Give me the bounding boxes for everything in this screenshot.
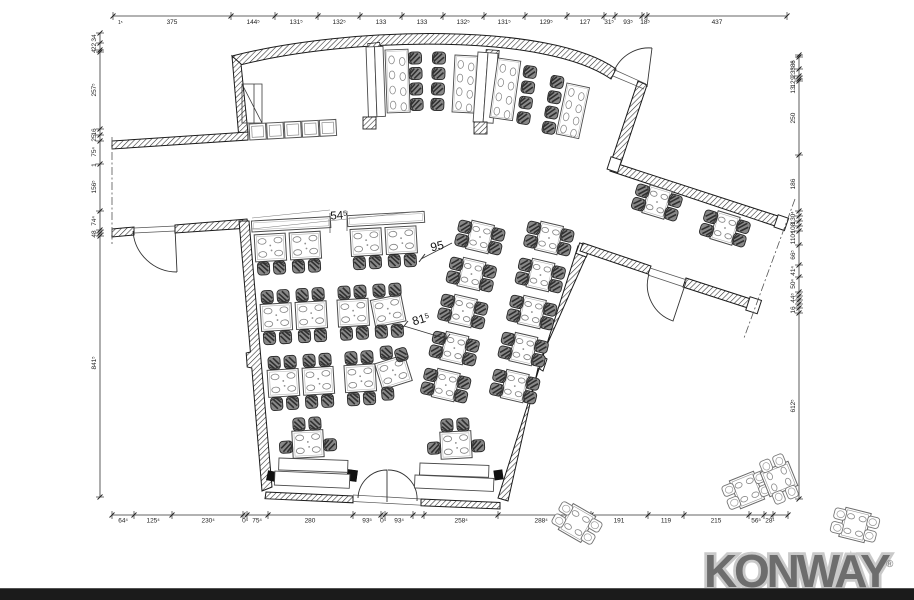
svg-text:34: 34 (91, 34, 98, 42)
svg-text:437: 437 (712, 19, 723, 26)
svg-text:48: 48 (91, 230, 98, 238)
svg-text:375: 375 (167, 19, 178, 26)
svg-text:133: 133 (376, 19, 387, 26)
svg-text:9: 9 (790, 76, 797, 80)
svg-text:®: ® (886, 559, 894, 570)
svg-text:250: 250 (790, 112, 797, 123)
svg-text:13: 13 (790, 86, 797, 94)
svg-text:1: 1 (91, 163, 98, 167)
svg-text:280: 280 (305, 518, 316, 525)
svg-text:127: 127 (580, 19, 591, 26)
svg-text:119: 119 (661, 518, 672, 525)
svg-text:22: 22 (91, 43, 98, 51)
svg-text:16: 16 (790, 306, 797, 314)
svg-text:25: 25 (91, 134, 98, 142)
svg-text:4: 4 (91, 49, 98, 53)
svg-text:133: 133 (417, 19, 428, 26)
svg-text:191: 191 (614, 518, 625, 525)
svg-text:186: 186 (790, 178, 797, 189)
svg-text:215: 215 (711, 518, 722, 525)
